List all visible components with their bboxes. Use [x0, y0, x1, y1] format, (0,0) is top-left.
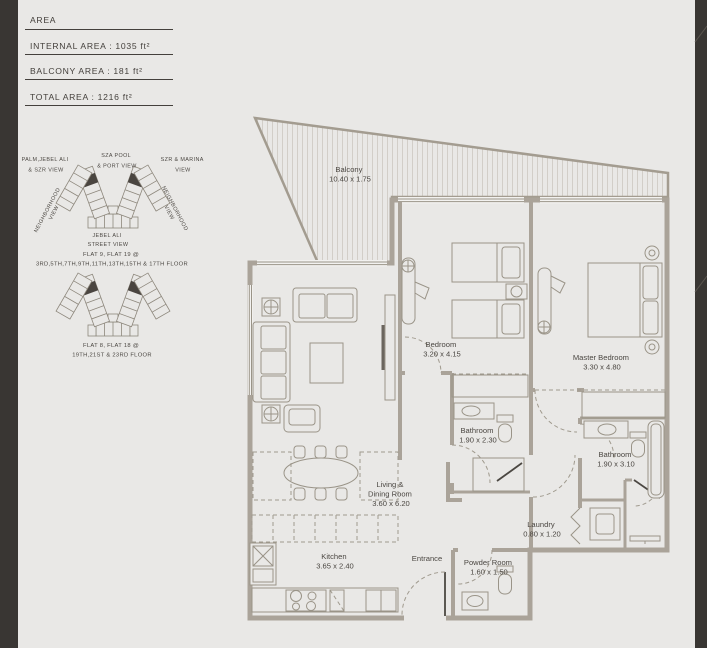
- floor-plan: Balcony 10.40 x 1.75 Bedroom 3.20 x 4.15…: [248, 118, 668, 623]
- area-title: AREA: [30, 15, 56, 25]
- master-nightstand-2: [645, 340, 659, 354]
- shower: [473, 458, 524, 491]
- armchair: [284, 405, 320, 432]
- view-label-pool: SZA POOL & PORT VIEW: [97, 153, 137, 170]
- bathroom1-door-arc: [452, 445, 490, 483]
- window-living-left: [248, 285, 253, 395]
- bathroom2-label: Bathroom 1.90 x 3.10: [597, 450, 635, 469]
- kitchen-sink-unit: [250, 543, 276, 585]
- powder-sink: [462, 592, 488, 610]
- balcony-region: [255, 118, 668, 263]
- tv-unit: [382, 295, 396, 400]
- entrance-door-arc: [402, 572, 445, 615]
- view-label-street: JEBEL ALI STREET VIEW: [88, 233, 129, 248]
- hallway-door-arc: [533, 455, 575, 497]
- shower-door-leaf: [497, 463, 522, 481]
- bedroom-ac-wardrobe: [402, 258, 429, 324]
- right-page-stripe: [695, 0, 707, 648]
- building-footprint: [56, 273, 170, 336]
- bathroom1-toilet: [497, 415, 513, 442]
- entrance-label: Entrance: [412, 554, 442, 563]
- sofa-three-seat: [253, 322, 290, 402]
- bedroom-label: Bedroom 3.20 x 4.15: [423, 340, 461, 359]
- entrance-opening: [404, 614, 446, 623]
- bathroom1-vanity: [454, 403, 494, 419]
- twin-bed-2: [452, 300, 524, 338]
- bedroom-nightstand: [506, 284, 527, 299]
- sofa-two-seat: [293, 288, 357, 322]
- floorplan-page: AREA INTERNAL AREA : 1035 ft² BALCONY AR…: [0, 0, 707, 648]
- master-bedroom-label: Master Bedroom 3.30 x 4.80: [573, 353, 631, 372]
- bathroom1-label: Bathroom 1.90 x 2.30: [459, 426, 497, 445]
- lamp-table-2: [262, 405, 280, 423]
- left-page-stripe: [0, 0, 18, 648]
- lamp-table-1: [262, 298, 280, 316]
- master-ac-wardrobe: [538, 268, 565, 334]
- master-bed: [588, 263, 662, 337]
- view-label-marina: SZR & MARINA VIEW: [161, 157, 206, 174]
- laundry-label: Laundry 0.80 x 1.20: [523, 520, 561, 539]
- area-row-balcony: BALCONY AREA : 181 ft²: [30, 66, 143, 76]
- coffee-table: [310, 343, 343, 383]
- living-dining-label: Living & Dining Room 3.60 x 6.20: [368, 480, 414, 508]
- wardrobe-bedroom: [452, 374, 528, 397]
- powder-room-label: Powder Room 1.60 x 1.50: [464, 558, 514, 577]
- twin-bed-1: [452, 243, 524, 282]
- master-nightstand-1: [645, 246, 659, 260]
- storage-shelf: [630, 536, 660, 544]
- bathroom2-vanity: [584, 421, 628, 438]
- lower-caption: FLAT 8, FLAT 18 @ 19TH,21ST & 23RD FLOOR: [72, 343, 152, 359]
- washing-machine: [590, 508, 620, 540]
- area-row-total: TOTAL AREA : 1216 ft²: [30, 92, 132, 102]
- upper-caption: FLAT 9, FLAT 19 @ 3RD,5TH,7TH,9TH,11TH,1…: [36, 252, 188, 268]
- kitchen-upper-cabinets: [252, 515, 398, 542]
- window-master: [540, 197, 662, 203]
- area-table: AREA INTERNAL AREA : 1035 ft² BALCONY AR…: [25, 15, 173, 106]
- window-living-top: [257, 260, 387, 266]
- location-diagram-upper: PALM,JEBEL ALI & SZR VIEW SZA POOL & POR…: [22, 153, 206, 268]
- kitchen-counter: [252, 588, 398, 612]
- dining-table: [284, 458, 358, 488]
- kitchen-label: Kitchen 3.65 x 2.40: [316, 552, 354, 571]
- laundry-bifold-door: [571, 508, 580, 544]
- location-diagram-lower: FLAT 8, FLAT 18 @ 19TH,21ST & 23RD FLOOR: [56, 273, 170, 359]
- wardrobe-master: [535, 390, 665, 418]
- window-bedroom: [398, 197, 524, 203]
- view-label-palm: PALM,JEBEL ALI & SZR VIEW: [22, 157, 71, 174]
- building-footprint: [56, 165, 170, 228]
- bathtub: [648, 421, 664, 498]
- area-row-internal: INTERNAL AREA : 1035 ft²: [30, 41, 150, 51]
- master-door-arc: [535, 390, 577, 432]
